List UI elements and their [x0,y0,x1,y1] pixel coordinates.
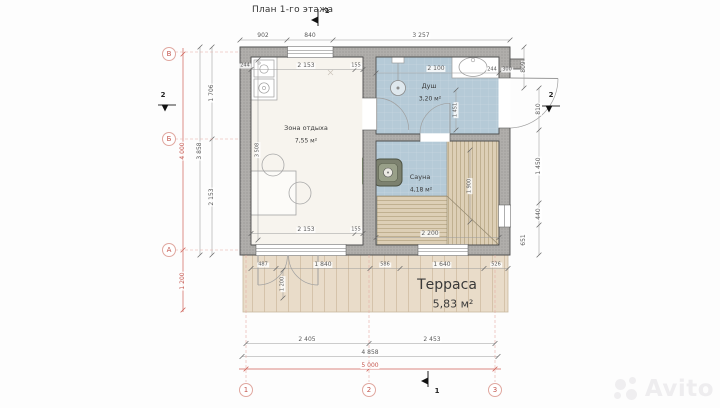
entrance-door [499,78,559,128]
section-arrow-icon [421,378,428,385]
sauna-stove [374,159,402,186]
section-arrow-icon [546,106,553,113]
floor-plan-sheet: 12219028403 2572442 1531552 100244300809… [0,0,720,408]
window-sauna-right [499,205,511,227]
plan-drawing [0,0,720,408]
watermark-text: Avito [645,376,714,402]
section-arrow-icon [162,105,169,112]
window-top [288,46,334,57]
glazed-wall-terrace [256,244,346,255]
page-title: План 1-го этажа [252,5,333,15]
entry-wall-stub [510,59,524,69]
avito-logo-icon [614,377,640,402]
window-sauna-bottom [418,244,468,255]
section-arrow-icon [311,17,318,24]
kitchen-counter [251,57,277,100]
watermark: Avito [614,376,714,402]
washbasin [452,57,499,78]
